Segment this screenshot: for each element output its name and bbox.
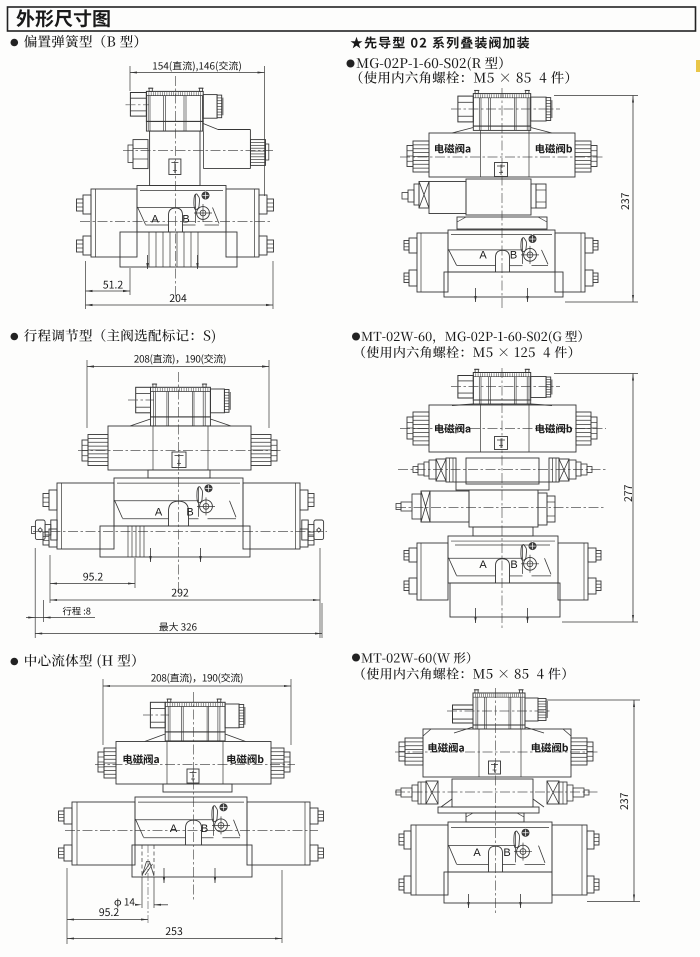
- svg-text:B: B: [201, 823, 208, 835]
- svg-text:A: A: [151, 214, 159, 226]
- svg-text:A: A: [155, 507, 163, 519]
- svg-text:A: A: [170, 823, 178, 835]
- svg-text:B: B: [186, 507, 193, 519]
- svg-text:A: A: [479, 559, 487, 571]
- svg-text:B: B: [510, 559, 517, 571]
- svg-text:B: B: [510, 250, 517, 262]
- svg-text:A: A: [473, 847, 481, 859]
- svg-text:B: B: [503, 847, 510, 859]
- svg-text:A: A: [479, 250, 487, 262]
- svg-text:B: B: [182, 214, 189, 226]
